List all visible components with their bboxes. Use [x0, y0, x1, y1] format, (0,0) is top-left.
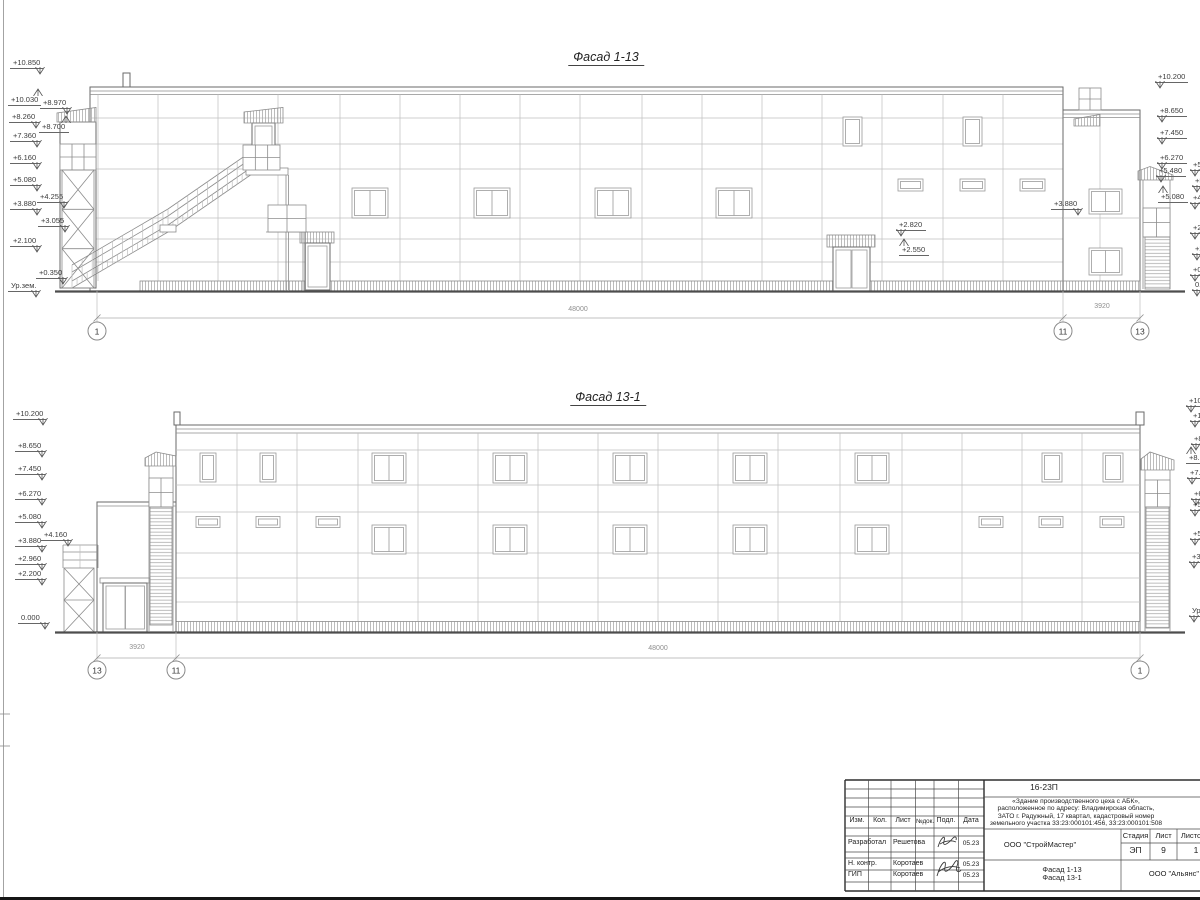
axis-bubble-11: 11 [167, 661, 186, 680]
axis-bubble-13: 13 [1131, 322, 1150, 341]
elevation-mark: +5.080 [15, 512, 45, 523]
tb-desc-line-4: земельного участка 33:23:000101:456, 33:… [990, 820, 1162, 827]
elevation-mark: Ур.зем. [8, 281, 39, 292]
tb-date-1: 05.23 [963, 861, 980, 868]
tb-name-2: Коротаев [893, 871, 923, 878]
dimension-label: 48000 [648, 645, 667, 652]
tb-role-1: Н. контр. [848, 860, 877, 867]
tb-stage-label: Стадия [1123, 831, 1149, 840]
elevation-mark: +2.820 [896, 220, 926, 231]
elevation-mark: +2.200 [15, 569, 45, 580]
tb-col-ndok: №док. [916, 818, 934, 825]
elevation-mark: +10.8 [1186, 396, 1200, 407]
tb-content-line-2: Фасад 13-1 [1042, 873, 1081, 882]
tb-name-0: Решетова [893, 839, 925, 846]
elevation-mark: +8.650 [15, 441, 45, 452]
elevation-mark: +7.360 [10, 131, 40, 142]
tb-sheet-value: 9 [1161, 845, 1166, 855]
tb-role-2: ГИП [848, 871, 862, 878]
elevation-mark: +4.2 [1190, 193, 1200, 204]
elevation-mark: +5.080 [1158, 192, 1188, 203]
tb-name-1: Коротаев [893, 860, 923, 867]
elevation-mark: +3.880 [10, 199, 40, 210]
tb-col-podl: Подл. [937, 817, 956, 824]
elevation-mark: 0.000 [18, 613, 48, 624]
elevation-mark: +7.3 [1187, 468, 1200, 479]
tb-col-list: Лист [895, 817, 910, 824]
facade-top-title: Фасад 1-13 [568, 50, 644, 66]
elevation-mark: +8.7 [1186, 453, 1200, 464]
elevation-mark: +6.160 [10, 153, 40, 164]
elevation-mark: +7.450 [1157, 128, 1187, 139]
elevation-mark: +2.5 [1190, 223, 1200, 234]
facade-bottom-title: Фасад 13-1 [570, 390, 646, 406]
elevation-mark: +3.055 [38, 216, 68, 227]
tb-col-data: Дата [963, 817, 979, 824]
dimension-label: 3920 [129, 644, 145, 651]
elevation-mark: +8.260 [9, 112, 39, 123]
elevation-mark: +2.1 [1192, 244, 1200, 255]
elevation-mark: +2.550 [899, 245, 929, 256]
elevation-mark: +5.080 [10, 175, 40, 186]
elevation-mark: +2.100 [10, 236, 40, 247]
elevation-mark: +4.255 [37, 192, 67, 203]
axis-bubble-1: 1 [88, 322, 107, 341]
elevation-mark: +6.1 [1191, 489, 1200, 500]
elevation-mark: Ур.зем. [1189, 606, 1200, 617]
drawing-sheet: Фасад 1-13 Фасад 13-1 Изм. Кол. Лист №до… [0, 0, 1200, 900]
elevation-mark: +6.270 [15, 489, 45, 500]
elevation-mark: +10.0 [1190, 411, 1200, 422]
elevation-mark: +2.960 [15, 554, 45, 565]
elevation-mark: +5.480 [1156, 166, 1186, 177]
tb-desc-line-1: «Здание производственного цеха с АБК», [1012, 798, 1140, 805]
elevation-mark: +8.650 [1157, 106, 1187, 117]
tb-date-0: 05.23 [963, 840, 980, 847]
elevation-mark: +10.200 [1155, 72, 1188, 83]
elevation-mark: +10.030 [8, 95, 41, 106]
annotation-layer: Фасад 1-13 Фасад 13-1 Изм. Кол. Лист №до… [0, 0, 1200, 900]
elevation-mark: +0.3 [1190, 265, 1200, 276]
elevation-mark: +5.4 [1190, 160, 1200, 171]
axis-bubble-13: 13 [88, 661, 107, 680]
tb-role-0: Разработал [848, 839, 886, 846]
dimension-label: 3920 [1094, 303, 1110, 310]
elevation-mark: +5.4 [1190, 500, 1200, 511]
tb-col-izm: Изм. [850, 817, 865, 824]
elevation-mark: +8.700 [39, 122, 69, 133]
tb-sheets-value: 1 [1194, 845, 1199, 855]
elevation-mark: +7.450 [15, 464, 45, 475]
tb-stage-value: ЭП [1129, 845, 1141, 855]
tb-col-kol: Кол. [873, 817, 887, 824]
elevation-mark: +6.270 [1157, 153, 1187, 164]
elevation-mark: +3.880 [1051, 199, 1081, 210]
elevation-mark: +10.850 [10, 58, 43, 69]
axis-bubble-1: 1 [1131, 661, 1150, 680]
tb-desc-line-3: ЗАТО г. Радужный, 17 квартал, кадастровы… [998, 813, 1155, 820]
tb-sheet-label: Лист [1155, 831, 1171, 840]
elevation-mark: +8.9 [1191, 434, 1200, 445]
elevation-mark: +3.8 [1189, 552, 1200, 563]
tb-date-2: 05.23 [963, 872, 980, 879]
elevation-mark: +3.880 [15, 536, 45, 547]
tb-firm: ООО "Альянс" [1149, 869, 1199, 878]
elevation-mark: 0.00 [1192, 280, 1200, 291]
tb-doc-number: 16-23П [1030, 782, 1058, 792]
axis-bubble-11: 11 [1054, 322, 1073, 341]
tb-sheets-label: Листов [1181, 831, 1200, 840]
tb-company: ООО "СтройМастер" [1004, 840, 1076, 849]
elevation-mark: +8.970 [40, 98, 70, 109]
elevation-mark: +4.160 [41, 530, 71, 541]
tb-desc-line-2: расположенное по адресу: Владимирская об… [998, 805, 1155, 812]
elevation-mark: +5.0 [1192, 176, 1200, 187]
elevation-mark: +5.0 [1190, 529, 1200, 540]
elevation-mark: +0.350 [36, 268, 66, 279]
dimension-label: 48000 [568, 306, 587, 313]
elevation-mark: +10.200 [13, 409, 46, 420]
